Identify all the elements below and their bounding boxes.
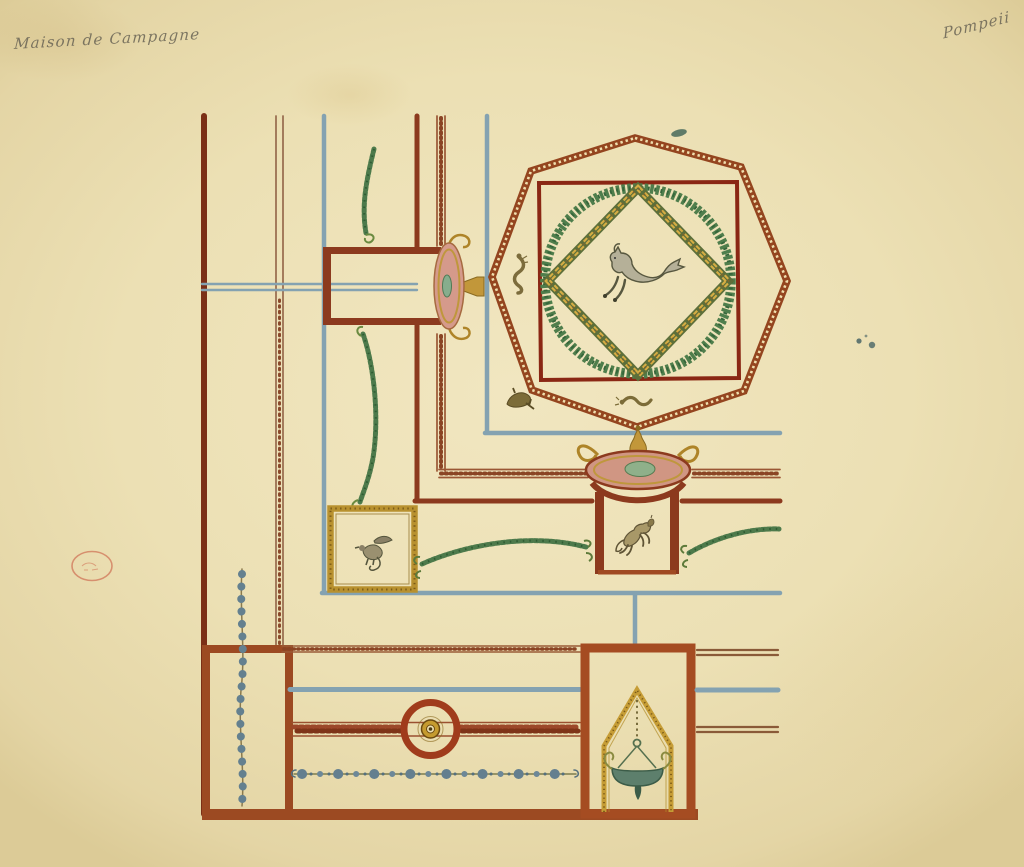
drawing-sheet: Maison de Campagne Pompeii — [0, 0, 1024, 867]
rearing-horse-figure — [616, 515, 654, 555]
right-of-lamp-bands — [697, 650, 778, 732]
side-table-top-left — [323, 235, 484, 339]
rosette-chain — [292, 770, 579, 777]
table-leg — [670, 492, 679, 574]
hippocamp-figure — [603, 244, 684, 302]
lamp-niche-panel — [585, 648, 691, 814]
sea-serpent-left — [515, 254, 529, 294]
ceiling-decoration-drawing — [0, 0, 1024, 867]
corner-panel-frame — [206, 649, 289, 815]
collection-stamp — [72, 552, 112, 581]
circle-boss-medallion — [404, 703, 457, 756]
griffin-panel — [331, 509, 415, 590]
hanging-lamp — [605, 700, 671, 800]
octagon-medallion — [492, 138, 787, 427]
table-leg — [595, 492, 604, 574]
sea-serpent-bottom — [615, 397, 651, 405]
griffin-figure — [355, 536, 392, 570]
left-garland — [352, 149, 375, 509]
